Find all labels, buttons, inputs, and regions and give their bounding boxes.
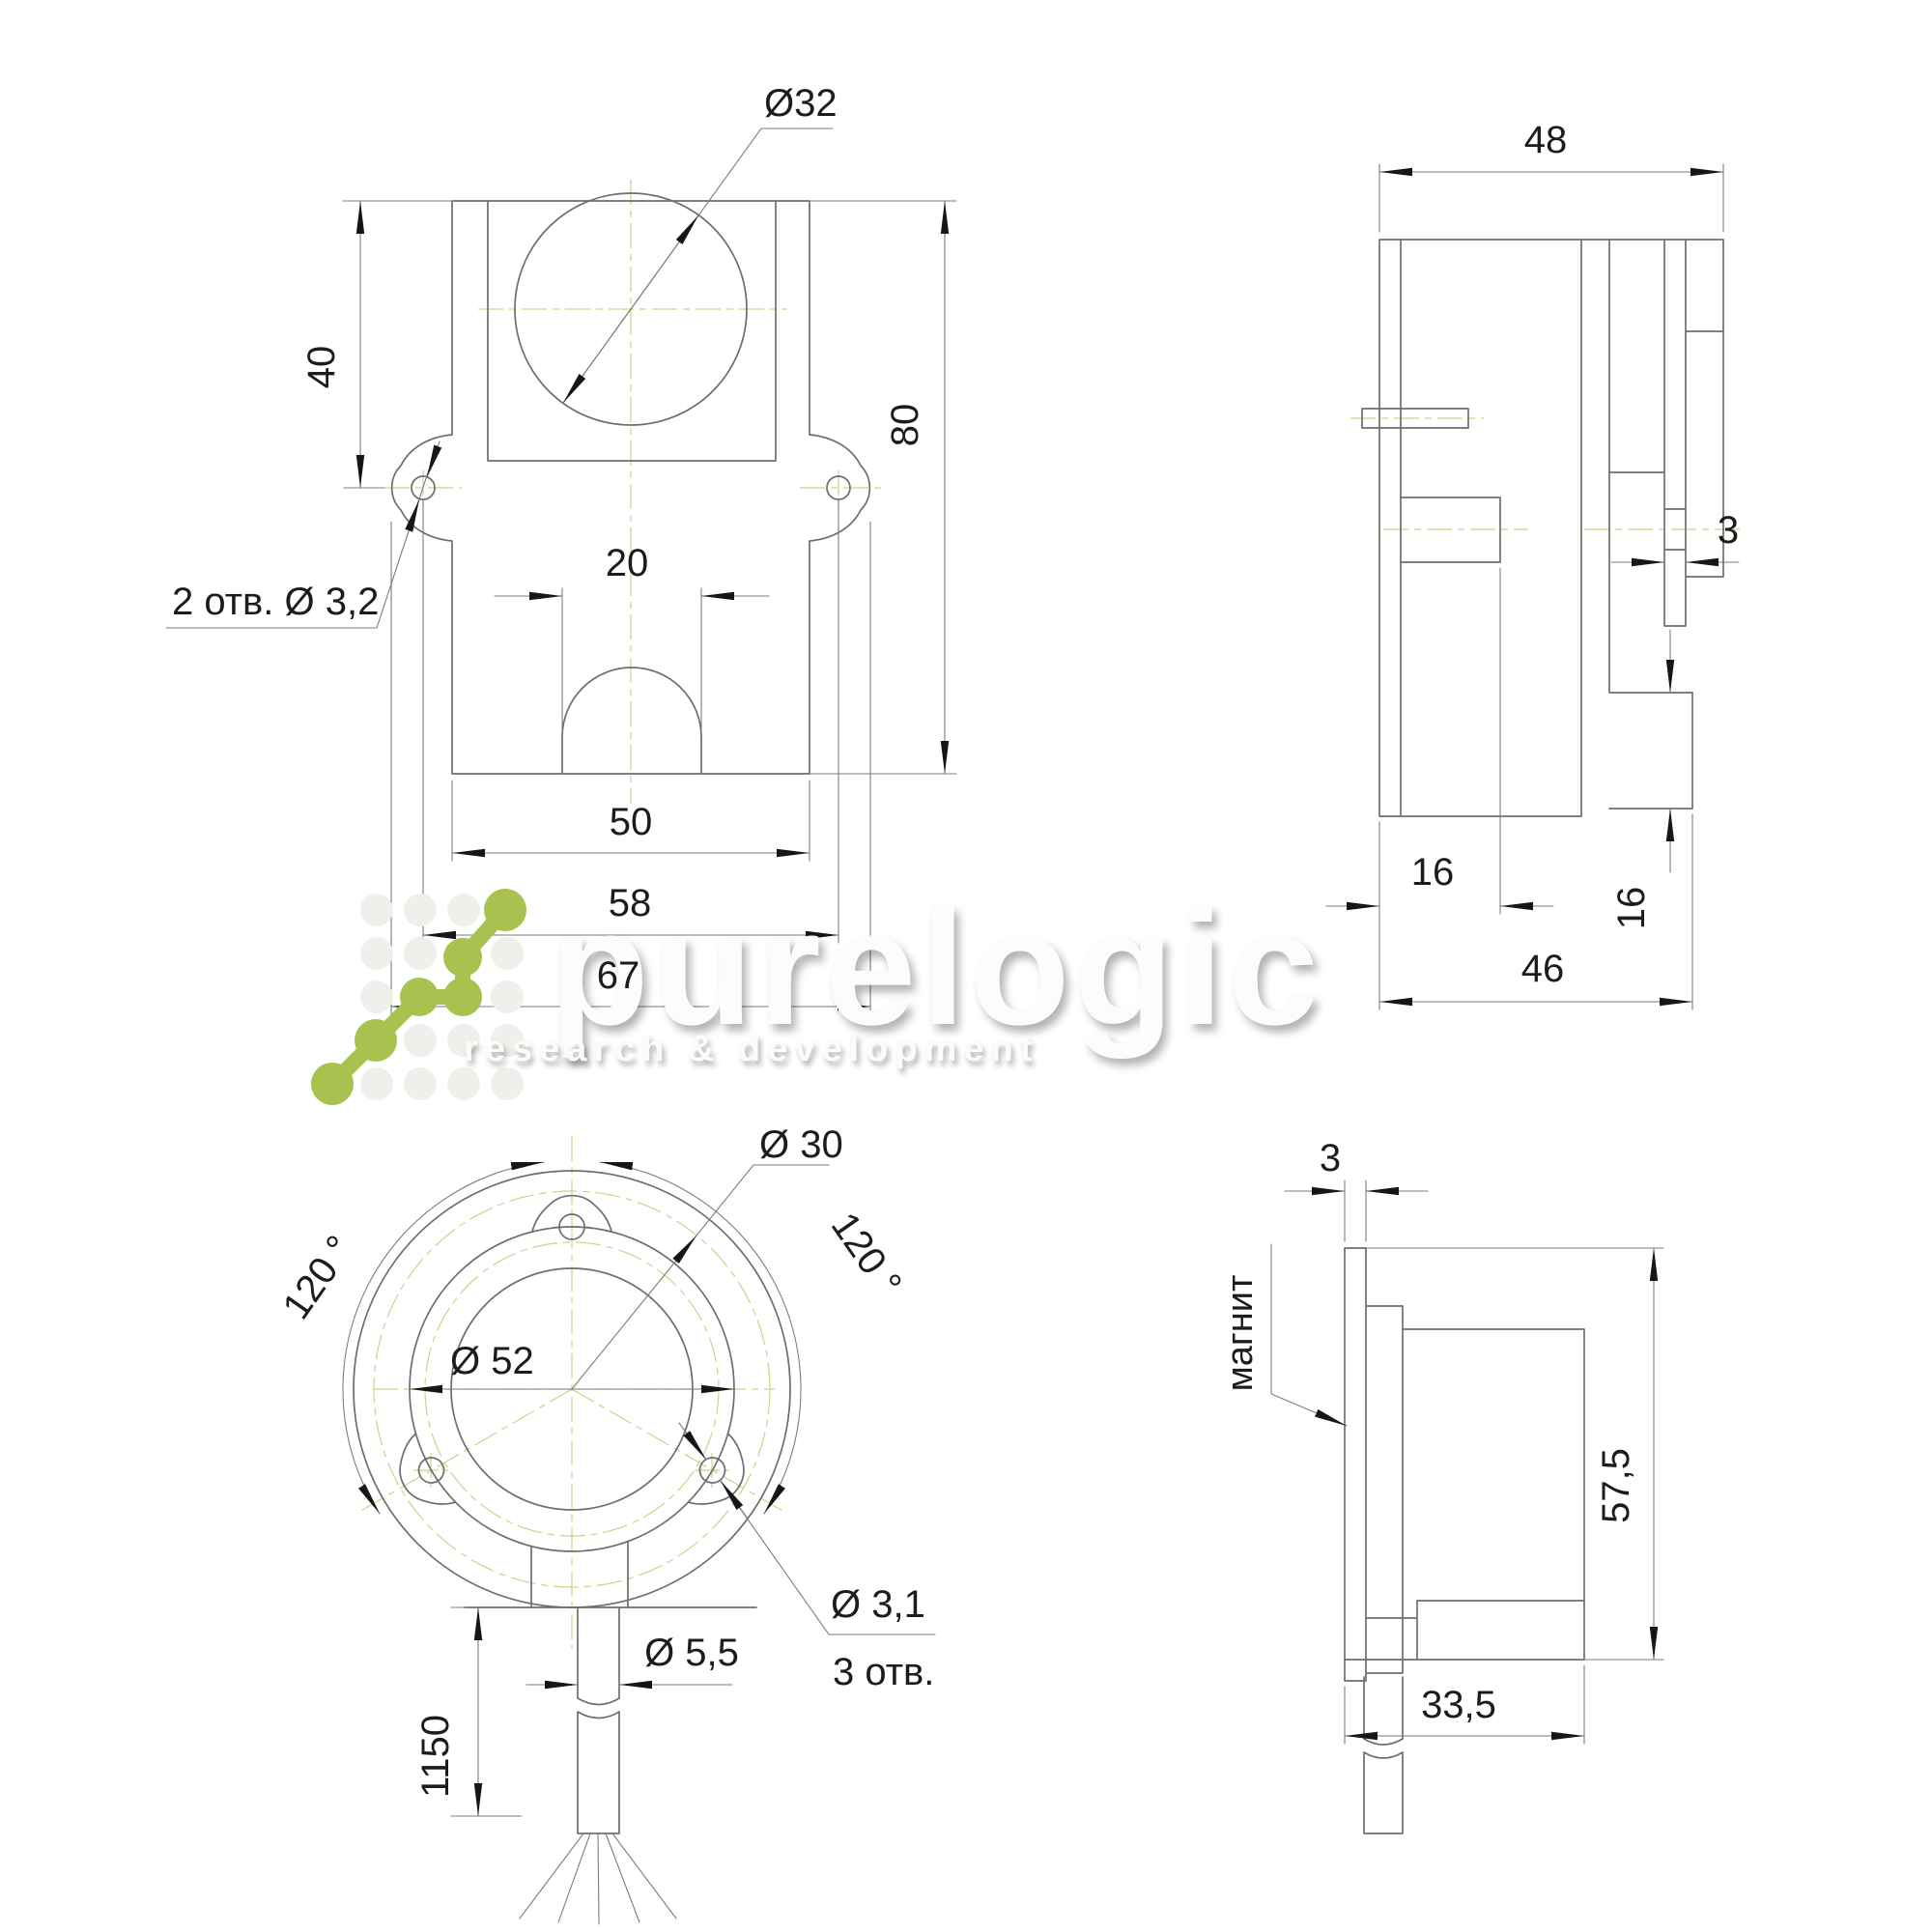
dim-text-67: 67 (597, 954, 640, 997)
dim-text-335: 33,5 (1421, 1684, 1496, 1726)
watermark: purelogic research & development (311, 876, 1322, 1105)
dim-text-16-flange: 16 (1411, 851, 1455, 894)
dim-text-3-side: 3 (1718, 509, 1739, 552)
leader-magnet-arrow (1271, 1394, 1347, 1426)
dim-text-3otv: 3 отв. (833, 1651, 934, 1693)
rear-centerlines (359, 1136, 784, 1648)
dim-text-46: 46 (1521, 948, 1565, 990)
dim-text-80: 80 (884, 404, 926, 447)
dim-text-120-right: 120 ° (823, 1205, 910, 1303)
dim-text-1150: 1150 (414, 1715, 457, 1798)
dim-text-58: 58 (609, 882, 652, 924)
technical-drawing: purelogic research & development Ø32 40 … (0, 0, 1932, 1932)
rear-stem-cable (465, 1542, 756, 1833)
dim-text-40: 40 (300, 346, 343, 389)
dim-text-3-magnet: 3 (1320, 1137, 1341, 1179)
leader-hole-arrow-high (427, 441, 440, 477)
dim-arc-120-left (343, 1162, 544, 1514)
magnet-outline (1345, 1248, 1584, 1833)
leader-hole-arrow-low (407, 499, 419, 537)
drawing-sheet: purelogic research & development Ø32 40 … (0, 0, 1932, 1932)
dim-text-20: 20 (606, 542, 649, 584)
dim-text-575: 57,5 (1595, 1448, 1637, 1523)
label-magnet: магнит (1220, 1275, 1261, 1392)
side-outline (1362, 240, 1723, 816)
dim-text-d52: Ø 52 (450, 1340, 534, 1382)
leader-d31-arrow-high (679, 1423, 706, 1460)
rear-wires (520, 1833, 676, 1924)
leader-d32-arrow-down (563, 309, 631, 403)
dim-text-50: 50 (610, 801, 653, 843)
watermark-tagline-text: research & development (464, 1029, 1038, 1069)
dim-text-holes-note: 2 отв. Ø 3,2 (172, 581, 379, 623)
front-centerlines (384, 180, 881, 804)
dim-text-d31: Ø 3,1 (831, 1583, 925, 1626)
dim-text-d30: Ø 30 (759, 1123, 843, 1166)
side-view (1326, 164, 1745, 1009)
dim-text-d32: Ø32 (764, 82, 838, 125)
leader-d32-arrow-up (631, 215, 698, 309)
dim-text-120-left: 120 ° (274, 1228, 361, 1326)
dim-text-d55: Ø 5,5 (644, 1632, 739, 1674)
dim-text-16-boss: 16 (1610, 887, 1653, 930)
leader-d30-arrow (572, 1236, 696, 1389)
dim-text-48: 48 (1524, 119, 1568, 161)
